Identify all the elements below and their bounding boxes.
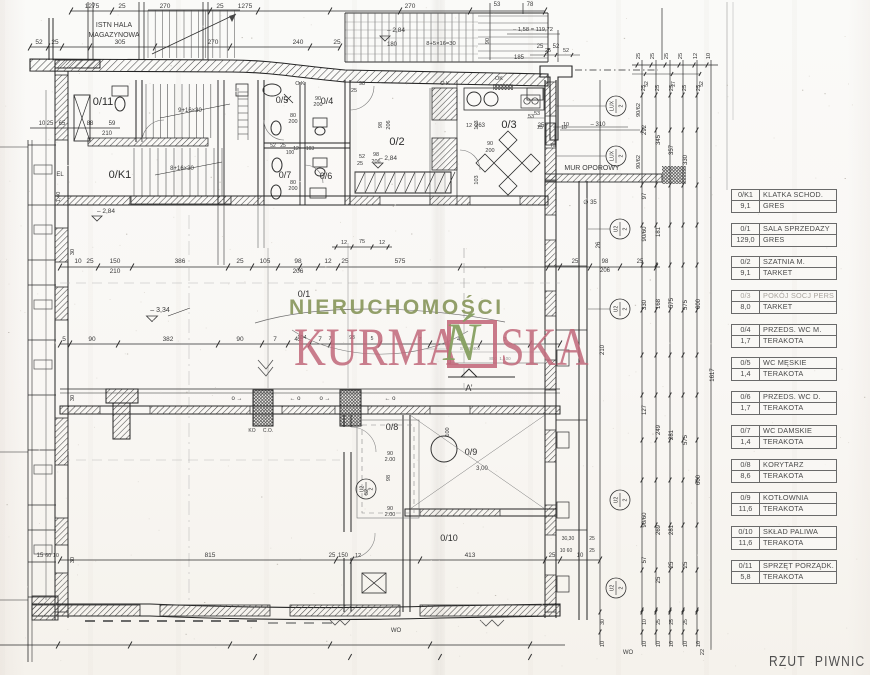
svg-text:90: 90 xyxy=(487,141,493,147)
svg-text:200: 200 xyxy=(313,102,322,108)
svg-text:263: 263 xyxy=(475,123,486,129)
svg-text:8+5×16=30: 8+5×16=30 xyxy=(426,41,456,47)
svg-text:30,30: 30,30 xyxy=(562,536,575,542)
svg-text:281: 281 xyxy=(669,524,675,535)
svg-text:27: 27 xyxy=(671,81,677,87)
svg-text:90: 90 xyxy=(236,336,244,343)
svg-text:STOL 400: STOL 400 xyxy=(460,346,481,351)
svg-text:12: 12 xyxy=(466,123,472,129)
svg-text:105: 105 xyxy=(260,258,271,265)
svg-text:WO: WO xyxy=(391,628,402,634)
svg-text:25: 25 xyxy=(549,553,556,559)
svg-text:O K: O K xyxy=(440,81,450,87)
svg-text:30: 30 xyxy=(70,249,76,255)
svg-text:← o: ← o xyxy=(384,396,396,402)
svg-text:10: 10 xyxy=(577,553,584,559)
svg-text:800 1,100: 800 1,100 xyxy=(489,356,511,361)
svg-text:12: 12 xyxy=(341,240,347,246)
svg-text:90/60: 90/60 xyxy=(642,226,648,242)
svg-text:25: 25 xyxy=(572,259,579,265)
svg-text:10: 10 xyxy=(642,641,648,647)
svg-text:150: 150 xyxy=(338,553,349,559)
svg-text:90: 90 xyxy=(88,336,96,343)
svg-text:25: 25 xyxy=(47,121,54,127)
svg-text:127: 127 xyxy=(642,404,648,415)
svg-text:210: 210 xyxy=(110,268,121,275)
svg-text:98: 98 xyxy=(349,335,355,341)
svg-text:345: 345 xyxy=(656,134,662,145)
svg-text:∅ 35: ∅ 35 xyxy=(583,199,597,206)
svg-text:59: 59 xyxy=(109,121,116,127)
svg-text:25: 25 xyxy=(655,85,661,91)
svg-text:98: 98 xyxy=(294,258,302,265)
svg-text:200: 200 xyxy=(288,186,297,192)
svg-text:210: 210 xyxy=(102,131,113,137)
svg-text:U2: U2 xyxy=(614,306,620,313)
svg-text:575: 575 xyxy=(683,434,689,445)
svg-text:25: 25 xyxy=(656,576,662,583)
svg-text:25: 25 xyxy=(280,143,286,149)
svg-text:25: 25 xyxy=(216,3,224,10)
svg-text:25: 25 xyxy=(537,44,544,50)
svg-text:10 60: 10 60 xyxy=(560,548,573,554)
svg-text:25: 25 xyxy=(333,39,341,46)
svg-text:60 10: 60 10 xyxy=(45,553,59,559)
svg-text:292: 292 xyxy=(642,124,648,135)
svg-text:88: 88 xyxy=(87,121,94,127)
svg-text:0/2: 0/2 xyxy=(389,136,404,148)
svg-text:15: 15 xyxy=(37,553,44,559)
svg-text:0/K1: 0/K1 xyxy=(109,169,132,181)
svg-text:2: 2 xyxy=(619,154,625,157)
svg-text:52: 52 xyxy=(644,81,650,87)
svg-text:o →: o → xyxy=(231,396,242,402)
svg-text:10: 10 xyxy=(669,641,675,647)
svg-text:2.00: 2.00 xyxy=(385,512,396,518)
svg-text:90/62: 90/62 xyxy=(636,103,642,117)
svg-text:30: 30 xyxy=(600,619,606,625)
svg-text:25: 25 xyxy=(329,553,336,559)
svg-text:10: 10 xyxy=(600,641,606,647)
svg-text:305: 305 xyxy=(115,39,126,46)
svg-text:– 2,84: – 2,84 xyxy=(387,27,405,34)
svg-text:52: 52 xyxy=(35,39,43,46)
svg-text:100: 100 xyxy=(445,427,451,436)
svg-text:10: 10 xyxy=(696,641,702,647)
svg-text:330: 330 xyxy=(642,299,648,310)
svg-text:0/7: 0/7 xyxy=(279,170,292,180)
svg-text:25: 25 xyxy=(682,85,688,91)
svg-text:25: 25 xyxy=(589,536,595,542)
svg-text:← o: ← o xyxy=(289,396,301,402)
svg-text:269: 269 xyxy=(656,524,662,535)
svg-text:7: 7 xyxy=(329,336,332,342)
svg-text:90/60: 90/60 xyxy=(642,512,648,528)
svg-text:357: 357 xyxy=(669,144,675,155)
svg-text:53: 53 xyxy=(494,2,501,8)
svg-text:5: 5 xyxy=(371,336,374,342)
svg-text:o →: o → xyxy=(319,396,330,402)
svg-text:12: 12 xyxy=(324,258,332,265)
svg-text:281: 281 xyxy=(669,429,675,440)
svg-text:52: 52 xyxy=(359,154,365,160)
svg-text:270: 270 xyxy=(208,39,219,46)
svg-text:600: 600 xyxy=(696,298,702,309)
svg-text:U2: U2 xyxy=(360,486,366,493)
svg-text:7: 7 xyxy=(318,336,322,343)
svg-text:53: 53 xyxy=(534,111,540,117)
svg-text:65: 65 xyxy=(59,121,66,127)
svg-text:25: 25 xyxy=(589,548,595,554)
svg-text:MAGAZYNOWA: MAGAZYNOWA xyxy=(88,32,139,39)
svg-text:9+16×30: 9+16×30 xyxy=(178,108,202,114)
svg-text:52: 52 xyxy=(270,143,276,149)
svg-text:600: 600 xyxy=(696,474,702,485)
svg-text:98: 98 xyxy=(373,152,379,158)
svg-text:EL: EL xyxy=(56,172,64,178)
svg-text:200: 200 xyxy=(485,148,494,154)
svg-text:104: 104 xyxy=(297,335,306,341)
svg-text:U2: U2 xyxy=(610,585,616,592)
svg-text:10: 10 xyxy=(706,53,712,59)
svg-text:52: 52 xyxy=(563,48,569,54)
svg-text:KO: KO xyxy=(248,428,255,434)
svg-text:42: 42 xyxy=(457,337,463,343)
svg-text:206: 206 xyxy=(386,120,392,129)
svg-text:10: 10 xyxy=(683,641,689,647)
svg-text:103: 103 xyxy=(306,146,315,152)
svg-text:25: 25 xyxy=(669,619,675,625)
svg-text:90: 90 xyxy=(485,38,491,44)
svg-text:815: 815 xyxy=(205,552,216,559)
svg-text:0/4: 0/4 xyxy=(321,96,334,106)
svg-text:1617: 1617 xyxy=(710,368,716,382)
svg-text:3,00: 3,00 xyxy=(476,466,488,472)
svg-text:270: 270 xyxy=(405,3,416,10)
svg-text:U2: U2 xyxy=(614,226,620,233)
svg-text:10: 10 xyxy=(39,121,46,127)
svg-text:0/10: 0/10 xyxy=(440,533,458,543)
svg-text:25: 25 xyxy=(537,125,543,131)
svg-text:25: 25 xyxy=(357,161,363,167)
svg-text:206: 206 xyxy=(293,268,304,275)
svg-text:150: 150 xyxy=(110,258,121,265)
svg-text:75: 75 xyxy=(359,239,365,245)
svg-text:52: 52 xyxy=(553,44,560,50)
svg-text:7: 7 xyxy=(418,337,421,343)
svg-text:– 2,84: – 2,84 xyxy=(97,208,115,215)
svg-text:25: 25 xyxy=(678,53,684,59)
svg-text:25: 25 xyxy=(650,53,656,59)
svg-text:C.O.: C.O. xyxy=(263,428,273,434)
svg-text:7: 7 xyxy=(273,336,277,343)
svg-text:575: 575 xyxy=(395,258,406,265)
svg-text:2: 2 xyxy=(619,586,625,589)
svg-text:0/5: 0/5 xyxy=(276,95,289,105)
svg-text:25: 25 xyxy=(636,53,642,59)
svg-text:1275: 1275 xyxy=(85,3,100,10)
svg-text:270: 270 xyxy=(160,3,171,10)
svg-text:249: 249 xyxy=(656,424,662,435)
svg-text:0/3: 0/3 xyxy=(501,119,516,131)
svg-text:30: 30 xyxy=(70,395,76,401)
svg-text:LUX: LUX xyxy=(610,100,616,111)
svg-text:– 3,34: – 3,34 xyxy=(150,307,170,314)
svg-text:206: 206 xyxy=(371,159,380,165)
svg-text:– 310: – 310 xyxy=(590,122,606,128)
svg-text:2: 2 xyxy=(623,498,629,501)
svg-text:– 2,84: – 2,84 xyxy=(379,155,397,162)
svg-text:MUR OPOROWY: MUR OPOROWY xyxy=(564,165,620,172)
svg-text:2.00: 2.00 xyxy=(385,457,396,463)
svg-text:25: 25 xyxy=(656,619,662,625)
svg-text:0/1: 0/1 xyxy=(298,289,311,299)
svg-text:413: 413 xyxy=(465,552,476,559)
svg-text:25: 25 xyxy=(236,258,244,265)
svg-text:5: 5 xyxy=(62,336,66,343)
svg-text:200: 200 xyxy=(288,119,297,125)
svg-text:WO: WO xyxy=(623,650,634,656)
svg-text:O K: O K xyxy=(295,81,305,87)
svg-text:382: 382 xyxy=(163,336,174,343)
svg-text:98: 98 xyxy=(359,81,365,87)
svg-text:1275: 1275 xyxy=(238,3,253,10)
svg-text:575: 575 xyxy=(683,299,689,310)
svg-text:206: 206 xyxy=(600,268,611,274)
svg-text:22: 22 xyxy=(700,649,706,655)
svg-text:90/62: 90/62 xyxy=(636,155,642,169)
svg-text:LUX: LUX xyxy=(610,150,616,161)
svg-text:A’: A’ xyxy=(465,383,472,393)
svg-text:78: 78 xyxy=(527,2,534,8)
svg-text:2: 2 xyxy=(619,104,625,107)
svg-text:0/8: 0/8 xyxy=(386,422,399,432)
svg-text:– 1,58 = 119,72: – 1,58 = 119,72 xyxy=(513,27,553,33)
svg-text:210: 210 xyxy=(600,344,606,355)
svg-text:10: 10 xyxy=(656,641,662,647)
svg-text:26: 26 xyxy=(596,241,602,248)
svg-text:10: 10 xyxy=(563,122,569,128)
svg-text:25: 25 xyxy=(118,3,126,10)
svg-text:ISTN HALA: ISTN HALA xyxy=(96,22,133,29)
svg-text:25: 25 xyxy=(683,561,689,568)
svg-text:52: 52 xyxy=(699,81,705,87)
svg-text:U2: U2 xyxy=(614,497,620,504)
svg-text:98: 98 xyxy=(378,122,384,128)
svg-text:103: 103 xyxy=(474,175,480,184)
svg-text:168: 168 xyxy=(656,298,662,309)
svg-text:25: 25 xyxy=(86,258,94,265)
svg-text:185: 185 xyxy=(514,55,525,61)
svg-text:0/9: 0/9 xyxy=(465,447,478,457)
svg-text:181: 181 xyxy=(656,226,662,237)
svg-text:25: 25 xyxy=(664,53,670,59)
svg-text:97: 97 xyxy=(642,192,648,199)
svg-text:2: 2 xyxy=(623,307,629,310)
svg-text:98: 98 xyxy=(602,259,609,265)
svg-text:OK: OK xyxy=(495,76,503,82)
svg-text:12: 12 xyxy=(355,553,361,559)
svg-text:0/11: 0/11 xyxy=(93,96,114,108)
svg-text:100: 100 xyxy=(286,150,295,156)
svg-text:2: 2 xyxy=(623,227,629,230)
svg-text:12: 12 xyxy=(379,240,385,246)
svg-text:57: 57 xyxy=(642,556,648,563)
svg-text:386: 386 xyxy=(175,258,186,265)
svg-text:25: 25 xyxy=(351,88,357,94)
svg-text:330: 330 xyxy=(683,154,689,165)
svg-text:25: 25 xyxy=(683,619,689,625)
svg-text:98: 98 xyxy=(386,475,392,481)
svg-text:2: 2 xyxy=(369,487,375,490)
svg-text:10: 10 xyxy=(642,619,648,625)
svg-text:25: 25 xyxy=(51,39,59,46)
svg-text:12: 12 xyxy=(693,53,699,59)
svg-text:575: 575 xyxy=(669,297,675,308)
svg-text:7: 7 xyxy=(503,337,506,343)
svg-text:180: 180 xyxy=(387,42,398,48)
svg-text:25: 25 xyxy=(669,561,675,568)
svg-text:10: 10 xyxy=(74,258,82,265)
